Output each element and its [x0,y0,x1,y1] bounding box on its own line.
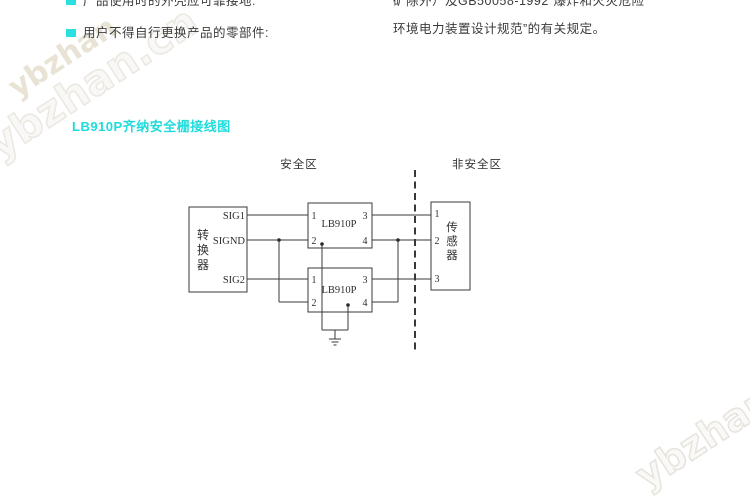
sensor-name-char: 传 [446,220,458,234]
pin-label: 2 [435,236,440,247]
pin-label: 2 [312,298,317,309]
zone-label-unsafe: 非安全区 [452,157,502,171]
pin-label: 1 [435,209,440,220]
pin-label: 2 [312,236,317,247]
converter-name-char: 转 [197,227,209,242]
zone-label-safe: 安全区 [280,157,318,171]
pin-label: 1 [312,275,317,286]
pin-label: 3 [363,275,368,286]
converter-name-char: 换 [197,243,209,257]
sensor-name-char: 感 [446,234,458,248]
sensor-name-char: 器 [446,249,458,262]
pin-label: 3 [363,211,368,222]
junction-dot [320,242,324,246]
terminal-label-signd: SIGND [213,236,246,247]
barrier-top-label: LB910P [321,219,356,230]
pin-label: 4 [363,236,368,247]
pin-label: 4 [363,298,368,309]
earth-ground-icon [329,330,341,345]
junction-dot [277,238,281,242]
converter-name-char: 器 [197,258,209,272]
pin-label: 1 [312,211,317,222]
barrier-bottom-label: LB910P [321,285,356,296]
wiring-diagram: 安全区 非安全区 转 换 器 SIG1 SIGND [0,0,750,463]
pin-label: 3 [435,274,440,285]
junction-dot [346,303,350,307]
terminal-label-sig1: SIG1 [223,211,245,222]
junction-dot [396,238,400,242]
terminal-label-sig2: SIG2 [223,275,245,286]
